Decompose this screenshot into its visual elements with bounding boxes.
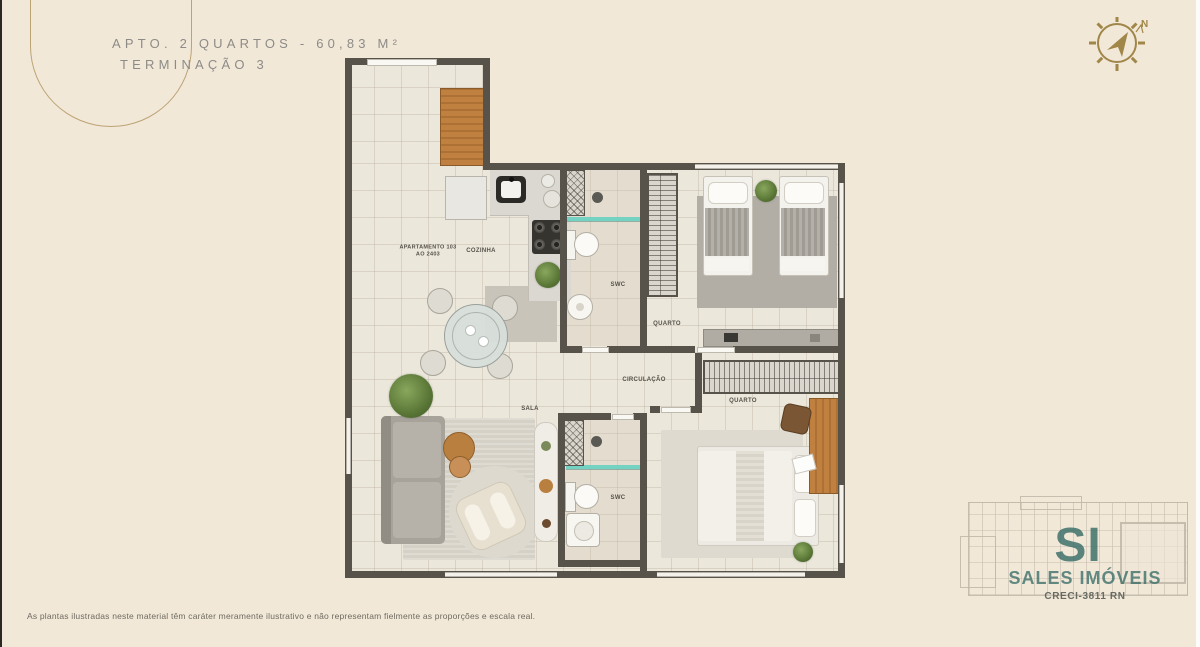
- refrigerator: [445, 176, 487, 220]
- living-plant: [389, 374, 433, 418]
- logo-creci: CRECI-3811 RN: [1044, 591, 1125, 602]
- floor-plan: APARTAMENTO 103 AO 2403 COZINHA SWC QUAR…: [345, 58, 845, 578]
- label-bedroom-top: QUARTO: [653, 320, 681, 328]
- entry-cabinet: [440, 88, 485, 166]
- wall: [558, 560, 647, 567]
- window: [445, 572, 557, 577]
- window: [839, 183, 844, 298]
- label-living: SALA: [521, 405, 539, 413]
- label-bedroom-bottom: QUARTO: [729, 397, 757, 405]
- compass-north-label: N: [1141, 19, 1148, 30]
- wall: [558, 413, 565, 567]
- wall: [650, 406, 660, 413]
- console-table: [534, 422, 558, 542]
- logo-initials: SI: [1054, 522, 1101, 570]
- kitchen-plant: [535, 262, 561, 288]
- countertop-appliance: [541, 174, 555, 188]
- label-apartment-range: APARTAMENTO 103 AO 2403: [399, 245, 456, 260]
- wardrobe: [703, 360, 841, 394]
- apartment-title: APTO. 2 QUARTOS - 60,83 M²: [112, 33, 401, 54]
- shower-glass: [567, 217, 640, 221]
- entry-door: [367, 59, 437, 66]
- wall: [345, 58, 352, 578]
- bathroom-bottom-door: [612, 414, 634, 420]
- logo-name: SALES IMÓVEIS: [1008, 568, 1161, 589]
- shower-head: [592, 192, 603, 203]
- dining-chair: [427, 288, 453, 314]
- left-edge-strip: [0, 0, 2, 647]
- wall: [695, 353, 702, 413]
- compass-icon: N: [1085, 13, 1155, 83]
- wardrobe: [647, 173, 678, 297]
- realtor-watermark: SI SALES IMÓVEIS CRECI-3811 RN: [960, 496, 1200, 616]
- bathroom-sink: [567, 294, 593, 320]
- single-bed: [703, 176, 753, 276]
- kitchen-sink: [496, 176, 526, 203]
- wall: [560, 346, 582, 353]
- disclaimer-text: As plantas ilustradas neste material têm…: [27, 611, 535, 621]
- page: APTO. 2 QUARTOS - 60,83 M² TERMINAÇÃO 3 …: [0, 0, 1200, 647]
- bathroom-vanity: [566, 513, 600, 547]
- bedroom-bottom-door: [661, 407, 691, 413]
- toilet: [565, 230, 599, 258]
- label-hall: CIRCULAÇÃO: [622, 376, 665, 384]
- shower-head: [591, 436, 602, 447]
- window: [657, 572, 805, 577]
- wall: [690, 406, 702, 413]
- wall: [640, 413, 647, 571]
- label-kitchen: COZINHA: [466, 247, 495, 255]
- dining-table: [444, 304, 508, 368]
- bedroom-bottom-plant: [793, 542, 813, 562]
- desk-chair: [779, 402, 812, 435]
- wall: [560, 163, 567, 353]
- countertop-bowl: [543, 190, 561, 208]
- wall: [633, 413, 647, 420]
- bathroom-top-door: [582, 347, 609, 353]
- window: [346, 418, 351, 474]
- wall: [733, 346, 845, 353]
- toilet: [565, 482, 599, 510]
- bedroom-top-plant: [755, 180, 777, 202]
- wall: [640, 163, 647, 353]
- wall: [558, 413, 611, 420]
- sofa: [381, 416, 445, 544]
- wall: [640, 346, 695, 353]
- bedroom-top-door: [697, 347, 735, 353]
- window: [839, 485, 844, 563]
- dining-chair: [420, 350, 446, 376]
- wall: [483, 58, 490, 168]
- dresser: [703, 329, 839, 347]
- label-bathroom-bottom: SWC: [611, 494, 626, 502]
- compass-needle: [1107, 32, 1128, 57]
- desk: [809, 398, 839, 494]
- window: [695, 164, 838, 169]
- side-table: [449, 456, 471, 478]
- duct-shaft: [562, 420, 584, 466]
- single-bed: [779, 176, 829, 276]
- label-bathroom-top: SWC: [611, 281, 626, 289]
